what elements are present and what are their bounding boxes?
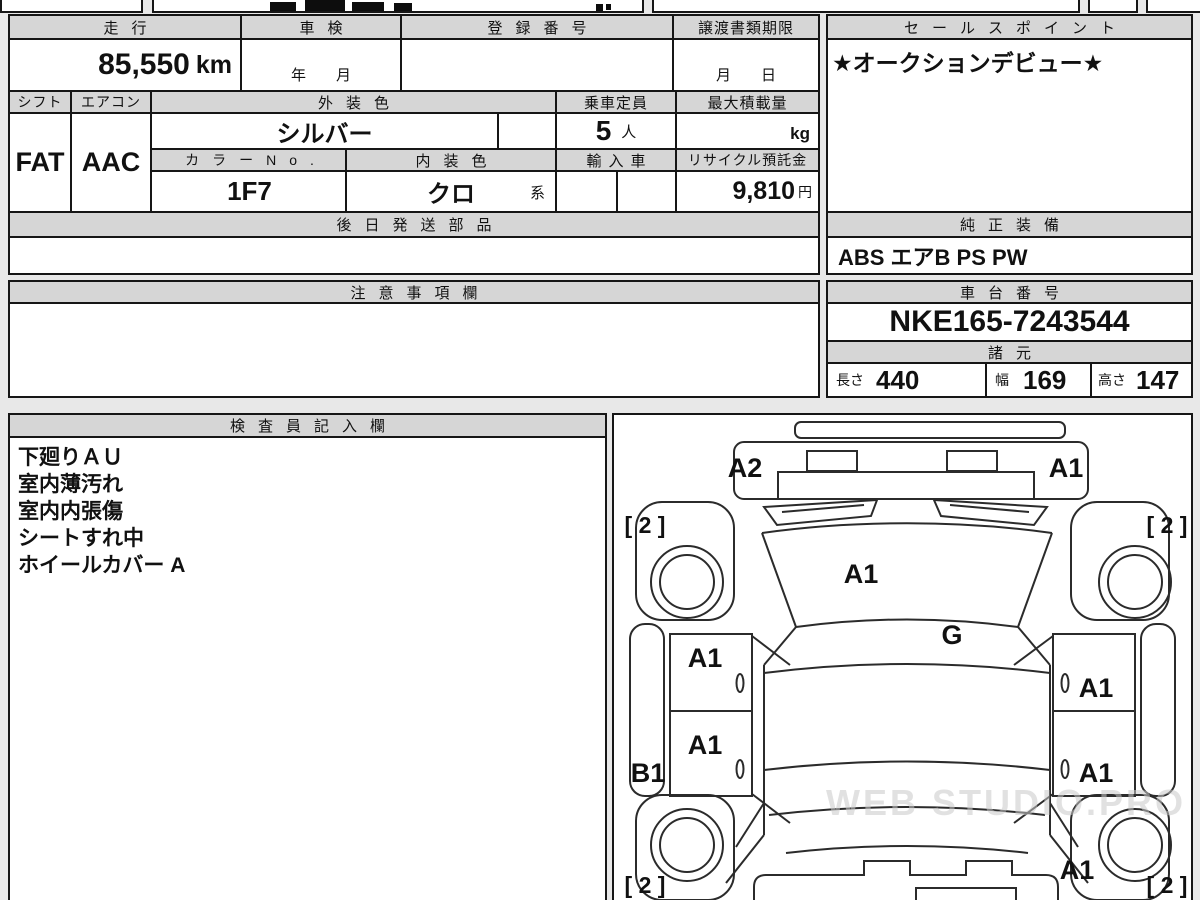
- cutoff-text-fragment: [596, 4, 603, 11]
- length-label: 長さ: [836, 370, 864, 390]
- interior-color-value: クロ: [427, 174, 475, 209]
- damage-label-rear-right-quarter: A1: [1060, 855, 1095, 885]
- inspector-note: 室内内張傷: [18, 498, 597, 525]
- cutoff-text-fragment: [305, 0, 345, 11]
- car-diagram-panel: A2 A1 A1 G A1 A1 B1 A1 A1 A1 [ 2 ] [ 2 ]…: [612, 413, 1193, 900]
- inspector-notes-header: 検査員記入欄: [8, 413, 607, 438]
- mileage-value: 85,550: [98, 48, 190, 82]
- registration-header: 登録番号: [400, 14, 674, 40]
- damage-label-front-bumper-right: A1: [1049, 453, 1084, 483]
- specs-header: 諸元: [826, 340, 1193, 364]
- front-light-right: [947, 451, 997, 471]
- damage-label-front-bumper-left: A2: [728, 453, 763, 483]
- imported-car-cell-a: [555, 170, 618, 213]
- cutoff-text-fragment: [394, 3, 412, 11]
- right-rocker: [1141, 624, 1175, 796]
- front-left-wheel: [651, 546, 723, 618]
- transfer-deadline-cell: 月 日: [672, 38, 820, 92]
- damage-label-left-rocker: B1: [631, 758, 666, 788]
- inspector-note: ホイールカバー A: [18, 552, 597, 579]
- sales-point-cell: ★オークションデビュー★: [826, 38, 1193, 213]
- exterior-color-cell: シルバー: [150, 112, 499, 150]
- cutoff-cell: [0, 0, 143, 13]
- height-value: 147: [1136, 365, 1179, 396]
- tire-label-front-left: [ 2 ]: [625, 512, 666, 538]
- parts-later-cell: [8, 236, 820, 275]
- damage-label-windshield: G: [941, 620, 962, 650]
- door-handle: [737, 760, 744, 778]
- height-label: 高さ: [1098, 370, 1126, 390]
- tire-label-rear-right: [ 2 ]: [1147, 872, 1188, 898]
- cutoff-text-fragment: [606, 4, 611, 10]
- equipment-cell: ABS エアB PS PW: [826, 236, 1193, 275]
- shift-cell: FAT: [8, 112, 72, 213]
- rear-left-wheel: [651, 809, 723, 881]
- rear-bumper: [754, 861, 1058, 900]
- inspector-notes-cell: 下廻りＡＵ 室内薄汚れ 室内内張傷 シートすれ中 ホイールカバー A: [8, 436, 607, 900]
- recycle-deposit-cell: 9,810 円: [675, 170, 820, 213]
- registration-cell: [400, 38, 674, 92]
- max-load-cell: kg: [675, 112, 820, 150]
- exterior-color-header: 外装色: [150, 90, 557, 114]
- capacity-unit: 人: [621, 121, 636, 142]
- damage-labels: A2 A1 A1 G A1 A1 B1 A1 A1 A1 [ 2 ] [ 2 ]…: [625, 453, 1188, 898]
- door-handle: [1062, 674, 1069, 692]
- capacity-value: 5: [596, 115, 612, 147]
- front-light-left: [807, 451, 857, 471]
- cutoff-cell: [652, 0, 1080, 13]
- mileage-unit: km: [196, 51, 232, 80]
- cautions-header: 注意事項欄: [8, 280, 820, 304]
- cutoff-text-fragment: [352, 2, 384, 11]
- cautions-cell: [8, 302, 820, 398]
- parts-later-header: 後日発送部品: [8, 211, 820, 238]
- transfer-deadline-header: 譲渡書類期限: [672, 14, 820, 40]
- color-no-header: カラーNo.: [150, 148, 349, 172]
- spec-height-cell: 高さ 147: [1090, 362, 1193, 398]
- mileage-header: 走行: [8, 14, 242, 40]
- inspector-note: シートすれ中: [18, 525, 597, 552]
- equipment-header: 純正装備: [826, 211, 1193, 238]
- inspector-note: 下廻りＡＵ: [18, 444, 597, 471]
- tire-label-rear-left: [ 2 ]: [625, 872, 666, 898]
- front-right-wheel: [1099, 546, 1171, 618]
- recycle-deposit-value: 9,810: [732, 177, 795, 206]
- imported-car-header: 輸入車: [555, 148, 677, 172]
- recycle-deposit-header: リサイクル預託金: [675, 148, 820, 172]
- damage-label-rear-left-door: A1: [688, 730, 723, 760]
- tire-label-front-right: [ 2 ]: [1147, 512, 1188, 538]
- damage-label-front-left-door: A1: [688, 643, 723, 673]
- cutoff-cell: [1146, 0, 1200, 13]
- car-diagram: A2 A1 A1 G A1 A1 B1 A1 A1 A1 [ 2 ] [ 2 ]…: [614, 415, 1191, 900]
- watermark: WEB STUDIO.PRO: [826, 782, 1186, 824]
- exterior-color-sub-cell: [497, 112, 557, 150]
- max-load-header: 最大積載量: [675, 90, 820, 114]
- sales-point-header: セールスポイント: [826, 14, 1193, 40]
- mileage-cell: 85,550 km: [8, 38, 242, 92]
- chassis-no-cell: NKE165-7243544: [826, 302, 1193, 342]
- capacity-header: 乗車定員: [555, 90, 677, 114]
- shaken-cell: 年 月: [240, 38, 402, 92]
- length-value: 440: [876, 365, 919, 396]
- rear-plate: [916, 888, 1016, 900]
- interior-color-suffix: 系: [530, 182, 545, 203]
- front-plate-bar: [795, 422, 1065, 438]
- aircon-cell: AAC: [70, 112, 152, 213]
- chassis-no-header: 車台番号: [826, 280, 1193, 304]
- imported-car-cell-b: [616, 170, 677, 213]
- width-value: 169: [1023, 365, 1066, 396]
- shift-header: シフト: [8, 90, 72, 114]
- interior-color-header: 内装色: [345, 148, 557, 172]
- shaken-header: 車検: [240, 14, 402, 40]
- auction-sheet: 走行 車検 登録番号 譲渡書類期限 85,550 km 年 月 月 日 シフト …: [0, 0, 1200, 900]
- cutoff-cell: [1088, 0, 1138, 13]
- door-handle: [1062, 760, 1069, 778]
- damage-label-front-right-door: A1: [1079, 673, 1114, 703]
- interior-color-cell: クロ 系: [345, 170, 557, 213]
- capacity-cell: 5 人: [555, 112, 677, 150]
- inspector-note: 室内薄汚れ: [18, 471, 597, 498]
- width-label: 幅: [995, 370, 1009, 390]
- sales-point-text: ★オークションデビュー★: [828, 40, 1191, 82]
- recycle-deposit-unit: 円: [798, 182, 812, 202]
- spec-length-cell: 長さ 440: [826, 362, 987, 398]
- door-handle: [737, 674, 744, 692]
- damage-label-hood: A1: [844, 559, 879, 589]
- cutoff-text-fragment: [270, 2, 296, 11]
- spec-width-cell: 幅 169: [985, 362, 1092, 398]
- aircon-header: エアコン: [70, 90, 152, 114]
- color-no-cell: 1F7: [150, 170, 349, 213]
